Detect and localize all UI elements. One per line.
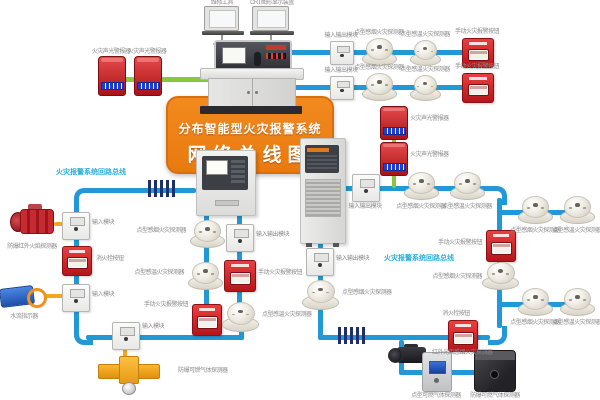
call-point-label: 手动火灾报警按钮 — [448, 29, 506, 36]
detector-indicator — [575, 295, 580, 298]
bracket — [28, 204, 42, 211]
manual-call-point — [486, 230, 516, 262]
fire-alarm-panel-wall — [196, 150, 256, 216]
console-plinth — [200, 106, 302, 114]
cabinet-display — [307, 155, 337, 169]
sounder-label: 火灾声光警报器 — [410, 116, 449, 123]
detector-indicator — [575, 203, 580, 206]
water-flow-indicator — [0, 282, 48, 310]
console-indicator-strip — [266, 45, 286, 50]
console-led-display — [266, 53, 286, 59]
module-label: 输入输出模块 — [256, 232, 289, 239]
banner-title-line1: 分布智能型火灾报警系统 — [168, 120, 332, 137]
input-module-label: 输入模块 — [92, 220, 114, 227]
right-loop-corner-br — [488, 326, 507, 345]
crt-display-laptop — [252, 6, 292, 38]
smoke-detector — [518, 196, 552, 224]
explosionproof-gas-detector — [98, 354, 158, 394]
panel-vent-slot — [215, 200, 239, 206]
detector-indicator — [423, 47, 427, 50]
cabinet-display-strip — [307, 148, 329, 152]
detector-label: 点型感温火灾探测器 — [262, 312, 312, 319]
heat-detector — [560, 196, 594, 224]
fire-alarm-cabinet-floor — [300, 138, 346, 244]
beam-detector-label: 红外光束感烟火灾探测器 — [432, 350, 493, 357]
detector-label: 点型感烟火灾探测器 — [398, 274, 482, 281]
cable-bundle-icon — [338, 327, 368, 344]
laptop-screen — [204, 6, 239, 31]
ex-gas-detector-label: 防爆可燃气体探测器 — [460, 393, 530, 400]
manual-call-point — [224, 260, 256, 292]
hydrant-button-label: 消火栓按钮 — [428, 311, 484, 318]
input-module-label: 输入模块 — [92, 292, 114, 299]
maintenance-laptop — [204, 6, 242, 38]
smoke-detector — [362, 38, 396, 66]
detector-label: 点型感温火灾探测器 — [398, 67, 452, 74]
detector-indicator — [533, 295, 538, 298]
fire-alarm-network-diagram: 分布智能型火灾报警系统 网络总线图 维修工具 CRT图形显示装置 火灾声光警报器… — [0, 0, 600, 400]
flame-detector-label: 防爆红外火焰探测器 — [0, 244, 64, 251]
laptop-screen — [252, 6, 289, 31]
panel-buttons — [231, 160, 245, 184]
smoke-detector — [302, 280, 338, 310]
manual-call-point — [462, 73, 494, 103]
call-point-label: 手动火灾报警按钮 — [448, 64, 506, 71]
console-screen — [222, 47, 246, 64]
left-loop-bottom-line — [86, 335, 244, 340]
gas-detector-body — [98, 364, 160, 379]
detector-indicator — [318, 288, 323, 292]
call-point-label: 手动火灾报警按钮 — [398, 240, 482, 247]
manual-call-point — [192, 304, 222, 336]
console-cabinet-doors — [208, 78, 296, 108]
fire-sounder-strobe — [380, 106, 408, 140]
detector-label: 点型感温火灾探测器 — [112, 270, 184, 277]
left-bus-annotation: 火灾报警系统回路总线 — [56, 169, 126, 177]
detector-label: 点型感烟火灾探测器 — [114, 228, 186, 235]
detector-indicator — [465, 179, 470, 182]
detector-label: 点型感烟火灾探测器 — [342, 290, 392, 297]
heat-detector — [560, 288, 594, 316]
call-point-label: 手动火灾报警按钮 — [116, 302, 188, 309]
hydrant-button-label: 消火栓按钮 — [96, 256, 124, 263]
call-point-label: 手动火灾报警按钮 — [258, 270, 302, 277]
detector-indicator — [419, 179, 424, 182]
central-control-console — [200, 38, 304, 114]
right-bus-annotation: 火灾报警系统回路总线 — [384, 255, 454, 263]
io-module — [330, 41, 354, 65]
input-module-label: 输入模块 — [142, 324, 164, 331]
heat-detector — [222, 302, 258, 332]
flow-indicator-label: 水流指示器 — [0, 314, 48, 321]
cabinet-vent-grille — [305, 179, 341, 217]
sounder-label: 火灾声光警报器 — [410, 152, 449, 159]
fire-sounder-strobe — [98, 56, 126, 96]
detector-indicator — [498, 269, 503, 272]
io-module — [226, 224, 254, 252]
detector-indicator — [203, 269, 208, 272]
io-module — [330, 76, 354, 100]
module-label: 输入输出模块 — [336, 256, 369, 263]
input-module — [62, 212, 90, 240]
detector-indicator — [205, 227, 210, 230]
detector-label: 点型感温火灾探测器 — [548, 320, 600, 327]
hydrant-button — [62, 246, 92, 276]
smoke-detector — [518, 288, 552, 316]
explosionproof-flame-detector — [8, 204, 54, 236]
io-module — [306, 248, 334, 276]
fire-sounder-strobe — [380, 142, 408, 176]
fire-sounder-strobe — [134, 56, 162, 96]
heat-detector — [450, 172, 484, 200]
smoke-detector — [482, 262, 518, 290]
detector-label: 点型感温火灾探测器 — [548, 228, 600, 235]
cable-bundle-icon — [148, 180, 178, 197]
detector-indicator — [238, 310, 243, 314]
heat-detector — [410, 40, 440, 66]
sounder-label: 火灾声光警报器 — [126, 49, 168, 56]
gas-detector-label: 防爆可燃气体探测器 — [178, 368, 228, 375]
detector-indicator — [533, 203, 538, 206]
module-label: 输入输出模块 — [336, 204, 394, 211]
smoke-detector — [362, 73, 396, 101]
detector-label: 点型感温火灾探测器 — [398, 32, 452, 39]
hydrant-button — [448, 320, 478, 352]
smoke-detector — [190, 220, 224, 248]
left-loop-top-line — [88, 188, 196, 193]
input-module — [62, 284, 90, 312]
gas-detector-panel — [422, 352, 452, 392]
laptop-base — [202, 31, 244, 35]
io-module — [352, 174, 380, 202]
console-phone-handset — [254, 52, 261, 66]
smoke-detector — [404, 172, 438, 200]
laptop-base — [250, 31, 294, 35]
laptop-right-label: CRT图形显示装置 — [240, 0, 304, 7]
detector-indicator — [423, 82, 427, 85]
heat-detector — [410, 75, 440, 101]
input-module — [112, 322, 140, 350]
detector-indicator — [377, 80, 382, 83]
detector-handle — [404, 344, 418, 348]
detector-indicator — [377, 45, 382, 48]
detector-label: 点型感温火灾探测器 — [438, 204, 496, 211]
heat-detector — [188, 262, 222, 290]
